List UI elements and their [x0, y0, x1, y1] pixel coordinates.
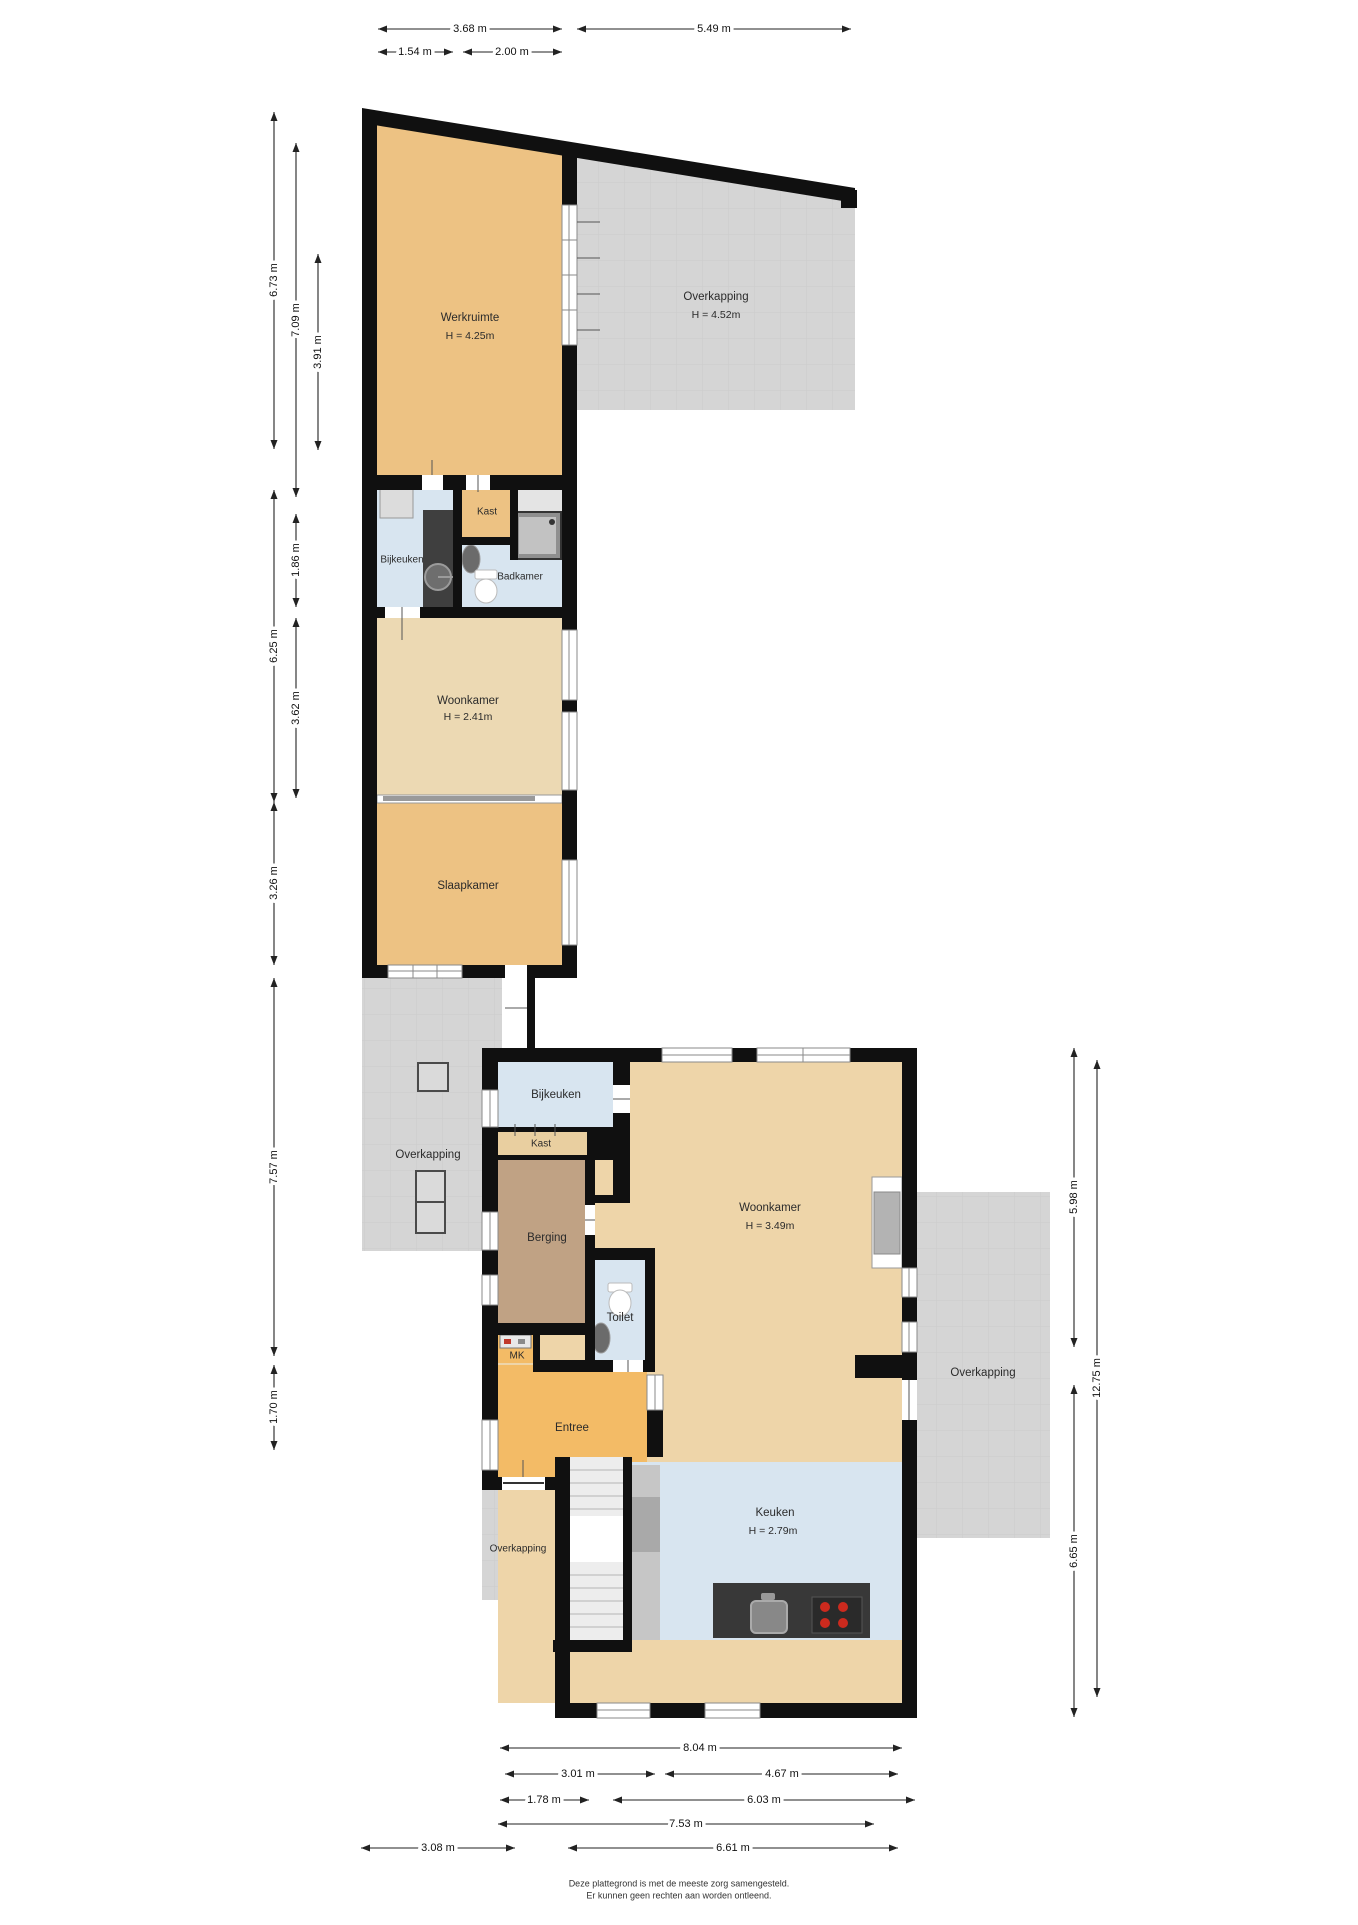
dimension-label: 3.26 m: [268, 866, 280, 900]
dimension-label: 3.91 m: [312, 335, 324, 369]
toilet-tank-icon: [475, 570, 497, 579]
room-height-woonkamer-upper: H = 2.41m: [444, 711, 493, 723]
room-label-werkruimte: Werkruimte: [441, 312, 500, 324]
room-label-mk: MK: [510, 1351, 525, 1362]
post-icon: [416, 1171, 445, 1202]
disclaimer-line2: Er kunnen geen rechten aan worden ontlee…: [586, 1890, 771, 1900]
room-label-kast: Kast: [531, 1139, 551, 1150]
dimension-label: 1.70 m: [268, 1390, 280, 1424]
kitchen-appliance: [632, 1497, 660, 1552]
room-height-keuken: H = 2.79m: [749, 1525, 798, 1537]
room-werkruimte-floor: [375, 121, 562, 475]
dimension-label: 2.00 m: [495, 46, 529, 58]
counter-bijkeuken-upper: [423, 510, 453, 607]
sink-icon: [462, 545, 480, 573]
dimension-label: 1.86 m: [290, 543, 302, 577]
dimension-label: 3.08 m: [421, 1842, 455, 1854]
room-label-bijkeuken: Bijkeuken: [531, 1089, 581, 1101]
post-icon: [418, 1063, 448, 1091]
dimension-label: 5.49 m: [697, 23, 731, 35]
dimension-label: 3.01 m: [561, 1768, 595, 1780]
dimension-label: 3.62 m: [290, 691, 302, 725]
dimension-label: 7.53 m: [669, 1818, 703, 1830]
room-label-toilet: Toilet: [607, 1312, 635, 1324]
dimension-label: 7.09 m: [290, 303, 302, 337]
room-label-badkamer: Badkamer: [497, 572, 543, 583]
room-label-overkapping-top: Overkapping: [683, 291, 748, 303]
door-opening: [422, 475, 443, 490]
burner-icon: [838, 1618, 848, 1628]
room-label-woonkamer-upper: Woonkamer: [437, 695, 499, 707]
room-height-woonkamer: H = 3.49m: [746, 1220, 795, 1232]
dimension-label: 7.57 m: [268, 1150, 280, 1184]
stove-icon: [812, 1597, 862, 1633]
burner-icon: [820, 1618, 830, 1628]
post-icon: [416, 1202, 445, 1233]
dimension-label: 3.68 m: [453, 23, 487, 35]
panel-switch-icon: [504, 1339, 511, 1344]
dimension-label: 6.73 m: [268, 263, 280, 297]
room-label-overkapping-right: Overkapping: [950, 1367, 1015, 1379]
dimension-label: 6.25 m: [268, 629, 280, 663]
room-label-overkapping-mid: Overkapping: [395, 1149, 460, 1161]
dimension-label: 1.54 m: [398, 46, 432, 58]
room-label-kast-upper: Kast: [477, 507, 497, 518]
kitchen-tap-icon: [761, 1593, 775, 1600]
fireplace-icon: [874, 1192, 900, 1254]
burner-icon: [838, 1602, 848, 1612]
dimension-label: 6.61 m: [716, 1842, 750, 1854]
corridor: [505, 978, 527, 1048]
kitchen-sink-icon: [751, 1601, 787, 1633]
burner-icon: [820, 1602, 830, 1612]
room-label-entree: Entree: [555, 1422, 589, 1434]
stairs: [570, 1457, 623, 1640]
kitchen-counter: [632, 1465, 660, 1640]
dimension-label: 1.78 m: [527, 1794, 561, 1806]
room-label-woonkamer: Woonkamer: [739, 1202, 801, 1214]
room-label-berging: Berging: [527, 1232, 567, 1244]
room-label-slaapkamer: Slaapkamer: [437, 880, 499, 892]
panel-switch-icon: [518, 1339, 525, 1344]
room-label-overkapping-entry: Overkapping: [490, 1544, 547, 1555]
toilet-bowl-icon: [475, 579, 497, 603]
dimension-label: 4.67 m: [765, 1768, 799, 1780]
dimension-label: 12.75 m: [1091, 1358, 1103, 1398]
dimension-label: 6.65 m: [1068, 1534, 1080, 1568]
overkapping-right-area: [917, 1192, 1050, 1538]
dimension-label: 5.98 m: [1068, 1180, 1080, 1214]
room-woonkamer-upper-floor: [375, 618, 562, 798]
sliding-door: [383, 796, 535, 801]
disclaimer: Deze plattegrond is met de meeste zorg s…: [569, 1878, 790, 1900]
disclaimer-line1: Deze plattegrond is met de meeste zorg s…: [569, 1878, 790, 1888]
room-label-bijkeuken-upper: Bijkeuken: [380, 555, 423, 566]
room-height-overkapping-top: H = 4.52m: [692, 309, 741, 321]
shower-head-icon: [549, 519, 555, 525]
room-height-werkruimte: H = 4.25m: [446, 330, 495, 342]
floorplan-canvas: Werkruimte H = 4.25m Overkapping H = 4.5…: [0, 0, 1358, 1920]
floorplan-page: Werkruimte H = 4.25m Overkapping H = 4.5…: [0, 0, 1358, 1920]
room-label-keuken: Keuken: [755, 1507, 794, 1519]
dimension-label: 8.04 m: [683, 1742, 717, 1754]
dimension-label: 6.03 m: [747, 1794, 781, 1806]
